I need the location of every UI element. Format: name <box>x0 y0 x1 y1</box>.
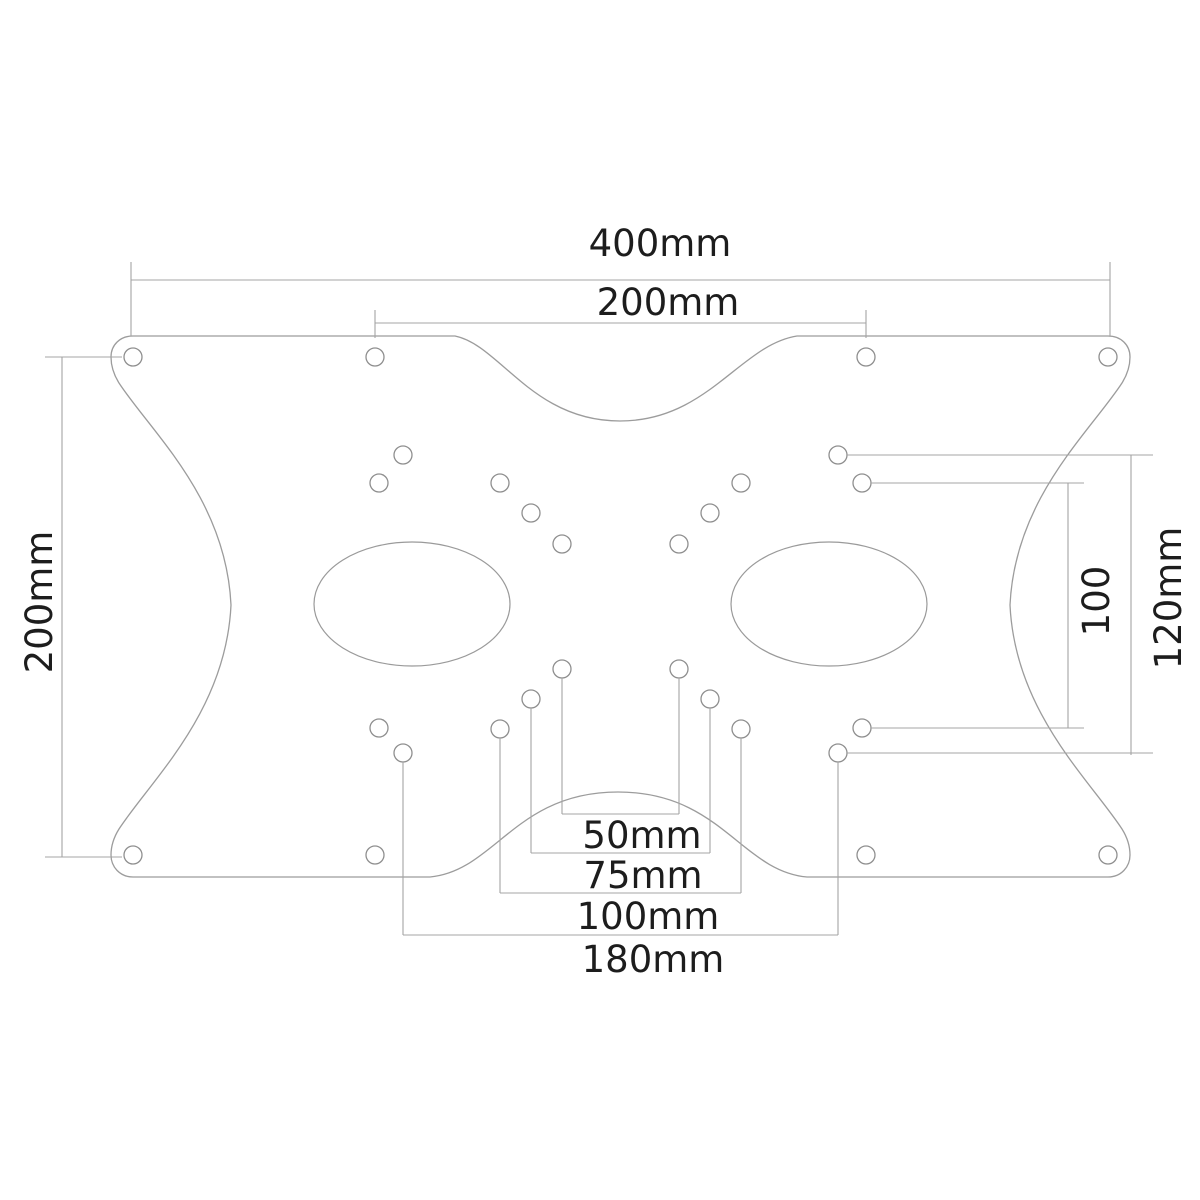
mounting-hole <box>1099 348 1117 366</box>
dim-label-bottom-75: 75mm <box>583 854 702 897</box>
technical-drawing-page: 400mm 200mm 200mm 100 120mm 50mm 75mm 10… <box>0 0 1200 1200</box>
mounting-hole <box>366 846 384 864</box>
dim-label-bottom-100: 100mm <box>577 895 720 938</box>
plate-outline <box>111 336 1130 877</box>
mounting-hole <box>394 446 412 464</box>
mounting-hole <box>732 720 750 738</box>
cutouts <box>314 542 927 666</box>
oval-cutout <box>731 542 927 666</box>
mounting-hole <box>370 474 388 492</box>
vesa-plate-drawing: 400mm 200mm 200mm 100 120mm 50mm 75mm 10… <box>0 0 1200 1200</box>
mounting-hole <box>670 660 688 678</box>
mounting-hole <box>124 348 142 366</box>
mounting-hole <box>491 720 509 738</box>
mounting-hole <box>732 474 750 492</box>
mounting-hole <box>370 719 388 737</box>
dim-label-bottom-180: 180mm <box>582 938 725 981</box>
mounting-hole <box>366 348 384 366</box>
dim-label-bottom-50: 50mm <box>582 814 701 857</box>
mounting-hole <box>857 348 875 366</box>
oval-cutout <box>314 542 510 666</box>
mounting-hole <box>853 719 871 737</box>
mounting-hole <box>522 690 540 708</box>
mounting-hole <box>701 690 719 708</box>
mounting-hole <box>857 846 875 864</box>
dim-label-overall-width: 400mm <box>589 222 732 265</box>
mounting-hole <box>853 474 871 492</box>
mounting-hole <box>829 744 847 762</box>
dim-label-left-height: 200mm <box>18 531 61 674</box>
mounting-hole <box>1099 846 1117 864</box>
mounting-hole <box>829 446 847 464</box>
mounting-hole <box>670 535 688 553</box>
mounting-hole <box>491 474 509 492</box>
mounting-holes <box>124 348 1117 864</box>
dim-label-upper-span: 200mm <box>597 281 740 324</box>
dim-label-right-outer-span: 120mm <box>1147 527 1190 670</box>
mounting-hole <box>701 504 719 522</box>
mounting-hole <box>394 744 412 762</box>
mounting-hole <box>124 846 142 864</box>
mounting-hole <box>522 504 540 522</box>
mounting-hole <box>553 660 571 678</box>
dim-label-right-inner-span: 100 <box>1075 566 1118 637</box>
mounting-hole <box>553 535 571 553</box>
